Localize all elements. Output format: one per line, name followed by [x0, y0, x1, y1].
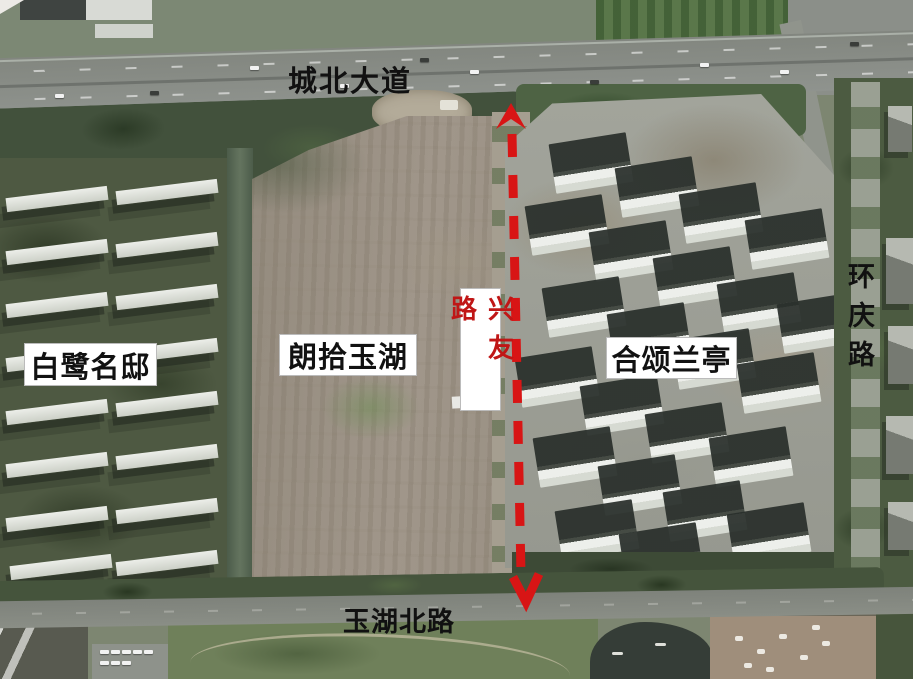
- label-yuhu-north-road: 玉湖北路: [343, 600, 455, 639]
- aerial-photo-map: 城北大道 白鹭名邸 朗拾玉湖 兴友路 合颂兰亭 环庆路 玉湖北路: [0, 0, 913, 679]
- label-bailu-mingdi: 白鹭名邸: [24, 343, 157, 386]
- label-xingyou-road: 兴友路: [460, 288, 501, 411]
- label-hesong-lanting: 合颂兰亭: [606, 337, 737, 379]
- label-chengbei-avenue: 城北大道: [288, 58, 412, 100]
- label-langshi-yuhu: 朗拾玉湖: [279, 334, 417, 376]
- label-huanqing-road: 环庆路: [840, 262, 879, 374]
- route-arrow-down-icon: [513, 574, 539, 602]
- route-arrow-up-icon: [496, 103, 526, 129]
